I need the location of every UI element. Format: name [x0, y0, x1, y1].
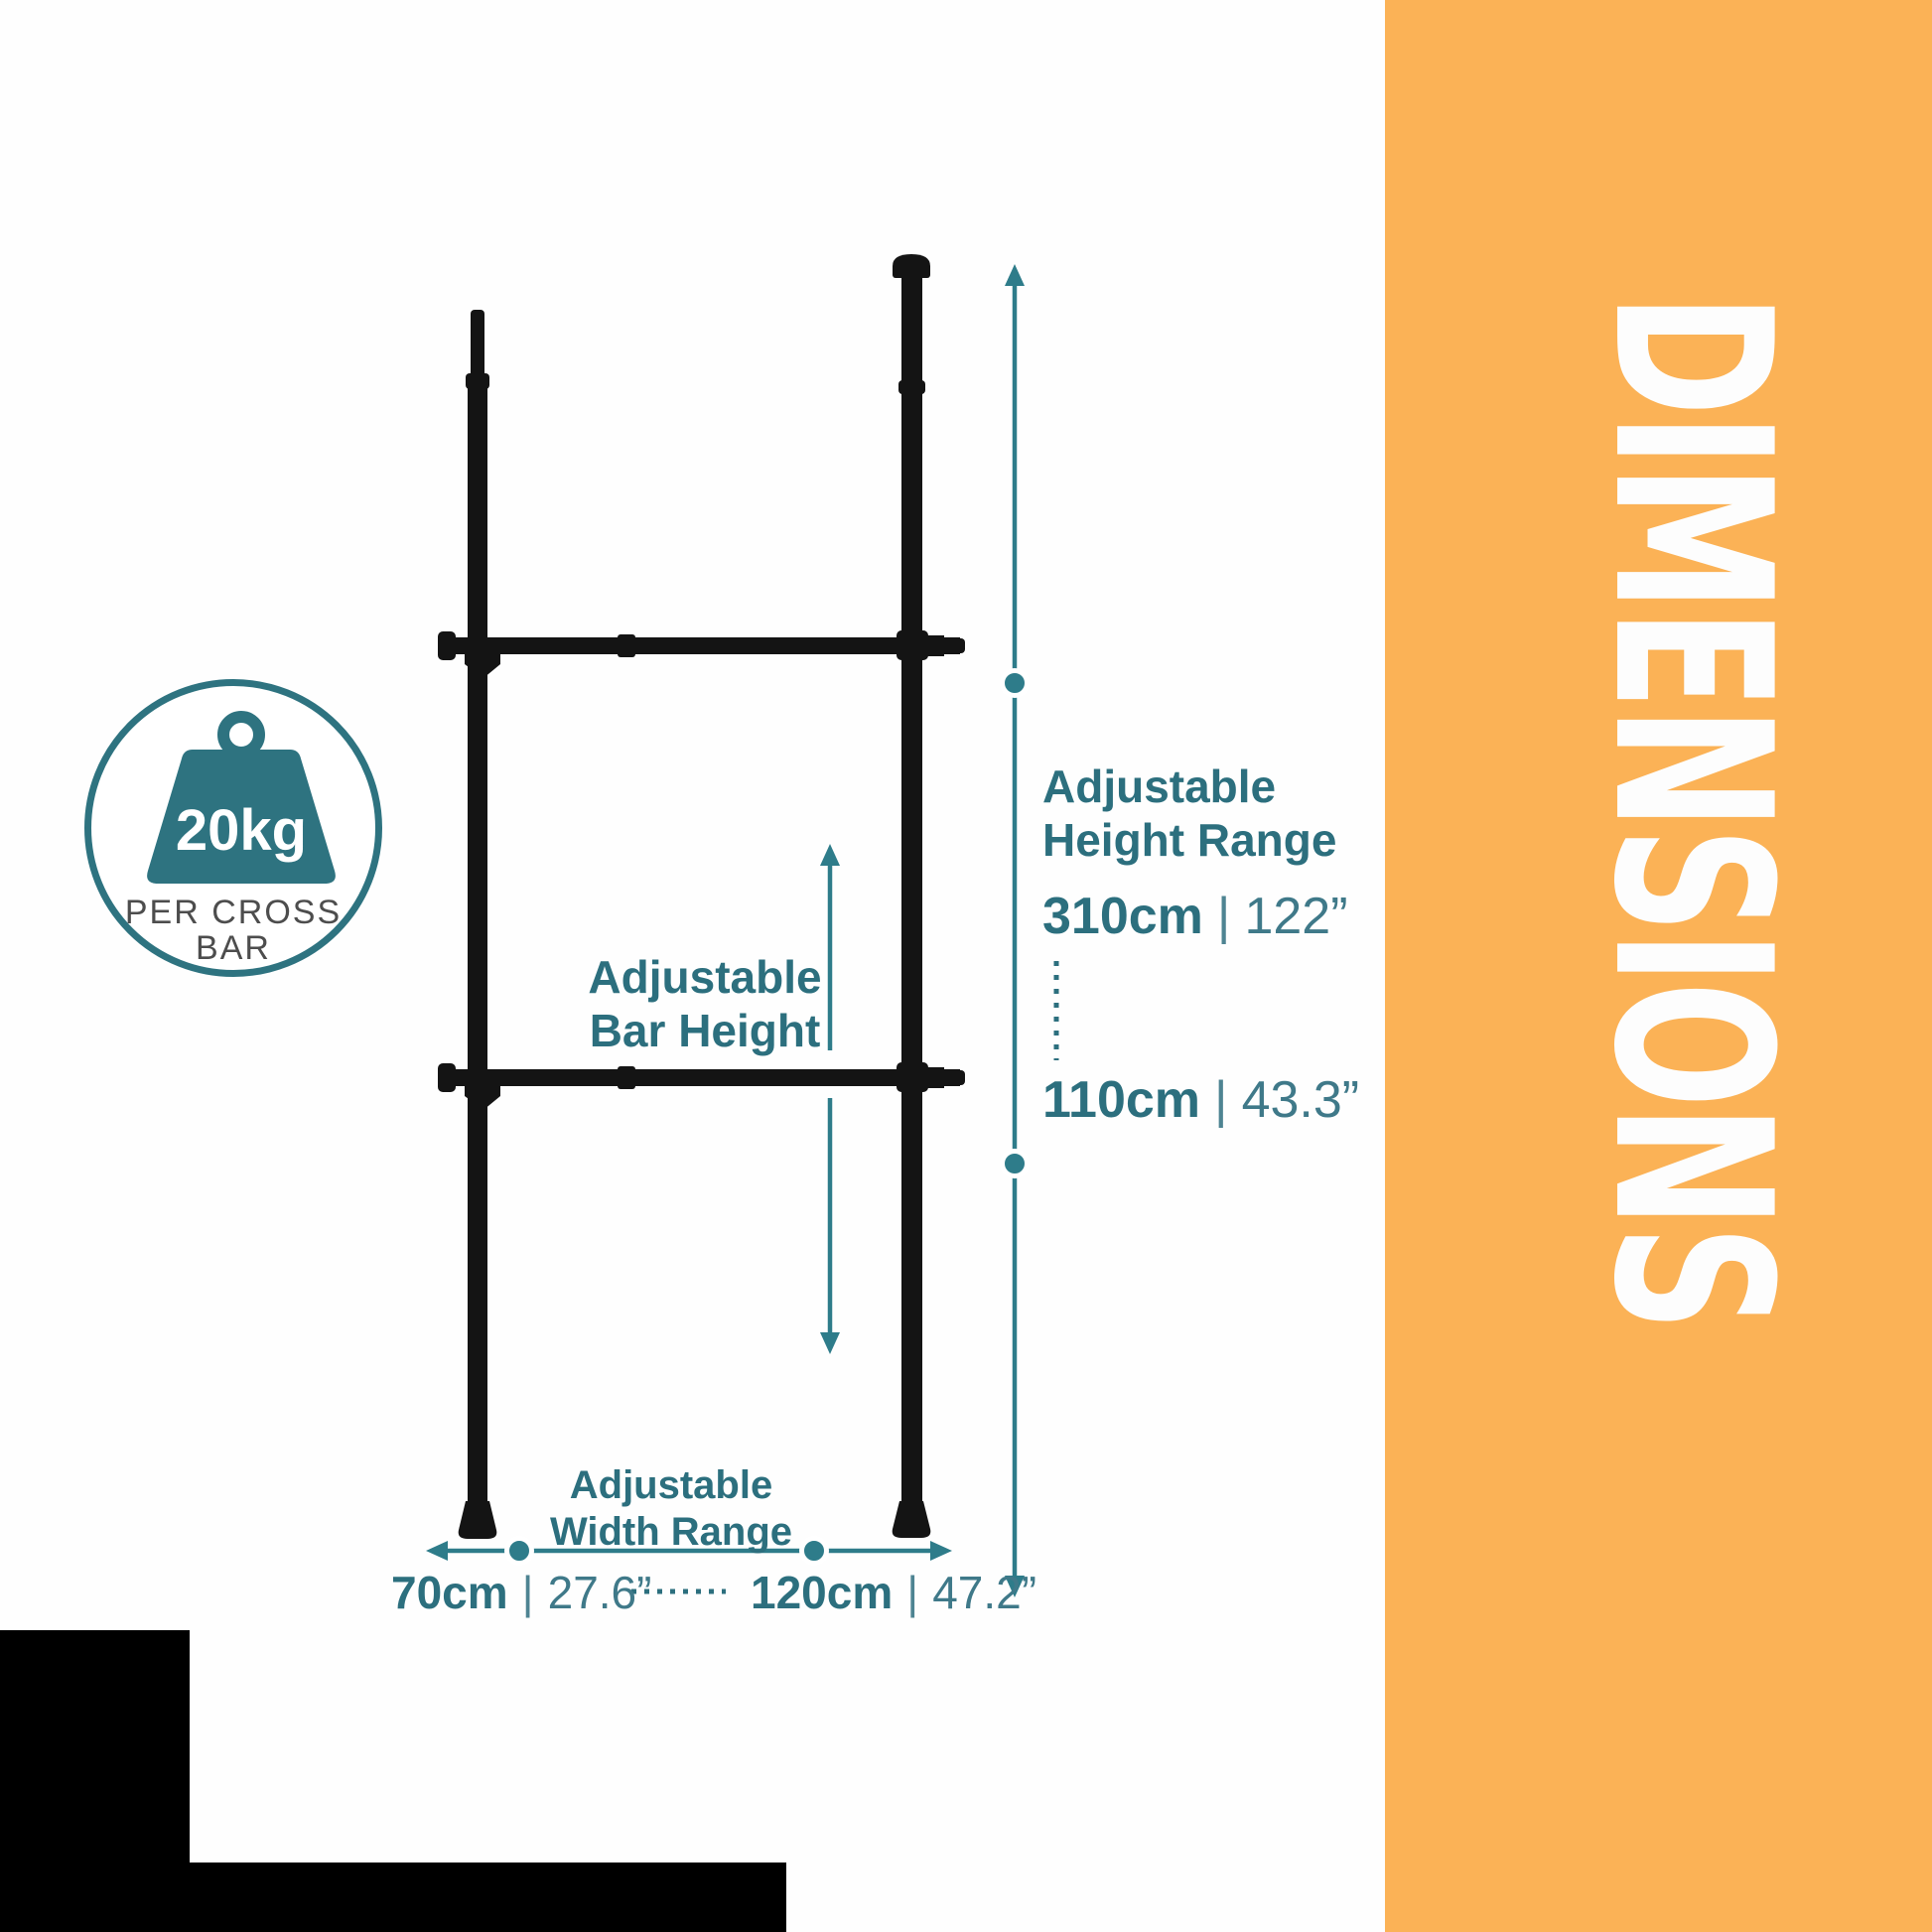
bar-height-arrow: [820, 844, 840, 1354]
height-max-inches: 122”: [1244, 887, 1347, 946]
height-marker-dot-bottom: [1003, 1152, 1028, 1176]
side-panel-title: DIMENSIONS: [1583, 293, 1799, 1484]
lower-cross-bar: [438, 1062, 965, 1110]
height-min-cm: 110cm: [1042, 1070, 1200, 1130]
height-max-cm: 310cm: [1042, 887, 1203, 946]
weight-icon: 20kg PER CROSS BAR: [84, 679, 382, 977]
bar-height-label: Adjustable Bar Height: [531, 950, 879, 1058]
bar-height-label-line1: Adjustable: [531, 950, 879, 1004]
badge-caption-line2: BAR: [196, 929, 271, 967]
width-min-cm: 70cm: [391, 1566, 508, 1619]
width-range-label: Adjustable Width Range: [496, 1462, 846, 1556]
width-max-cm: 120cm: [751, 1566, 893, 1619]
right-pole: [893, 254, 931, 1538]
upper-cross-bar: [438, 630, 965, 678]
weight-handle-ring: [223, 717, 259, 753]
height-range-label: Adjustable Height Range: [1042, 760, 1336, 868]
photo-crop-block-bottom: [0, 1863, 786, 1932]
width-range-label-line1: Adjustable: [496, 1462, 846, 1509]
height-min-measurement: 110cm | 43.3”: [1042, 1070, 1359, 1130]
height-min-separator: |: [1214, 1070, 1228, 1130]
height-min-inches: 43.3”: [1242, 1070, 1360, 1130]
height-range-label-line1: Adjustable: [1042, 760, 1336, 814]
width-min-inches: 27.6”: [548, 1566, 652, 1619]
badge-weight-text: 20kg: [176, 798, 307, 863]
weight-capacity-badge: 20kg PER CROSS BAR: [84, 679, 382, 977]
width-min-measurement: 70cm | 27.6”: [391, 1566, 651, 1619]
width-max-inches: 47.2”: [932, 1566, 1036, 1619]
badge-caption-line1: PER CROSS: [125, 894, 342, 931]
height-max-separator: |: [1217, 887, 1231, 946]
dimensions-infographic: 20kg PER CROSS BAR Adjustable Bar Height…: [0, 0, 1932, 1932]
bar-height-label-line2: Bar Height: [531, 1004, 879, 1057]
width-max-separator: |: [906, 1566, 918, 1619]
height-range-label-line2: Height Range: [1042, 814, 1336, 868]
width-min-separator: |: [522, 1566, 534, 1619]
left-pole: [459, 310, 497, 1539]
height-range-arrow: [1003, 264, 1028, 1597]
height-max-measurement: 310cm | 122”: [1042, 887, 1348, 946]
height-marker-dot-top: [1003, 671, 1028, 696]
width-range-label-line2: Width Range: [496, 1509, 846, 1556]
width-max-measurement: 120cm | 47.2”: [751, 1566, 1036, 1619]
